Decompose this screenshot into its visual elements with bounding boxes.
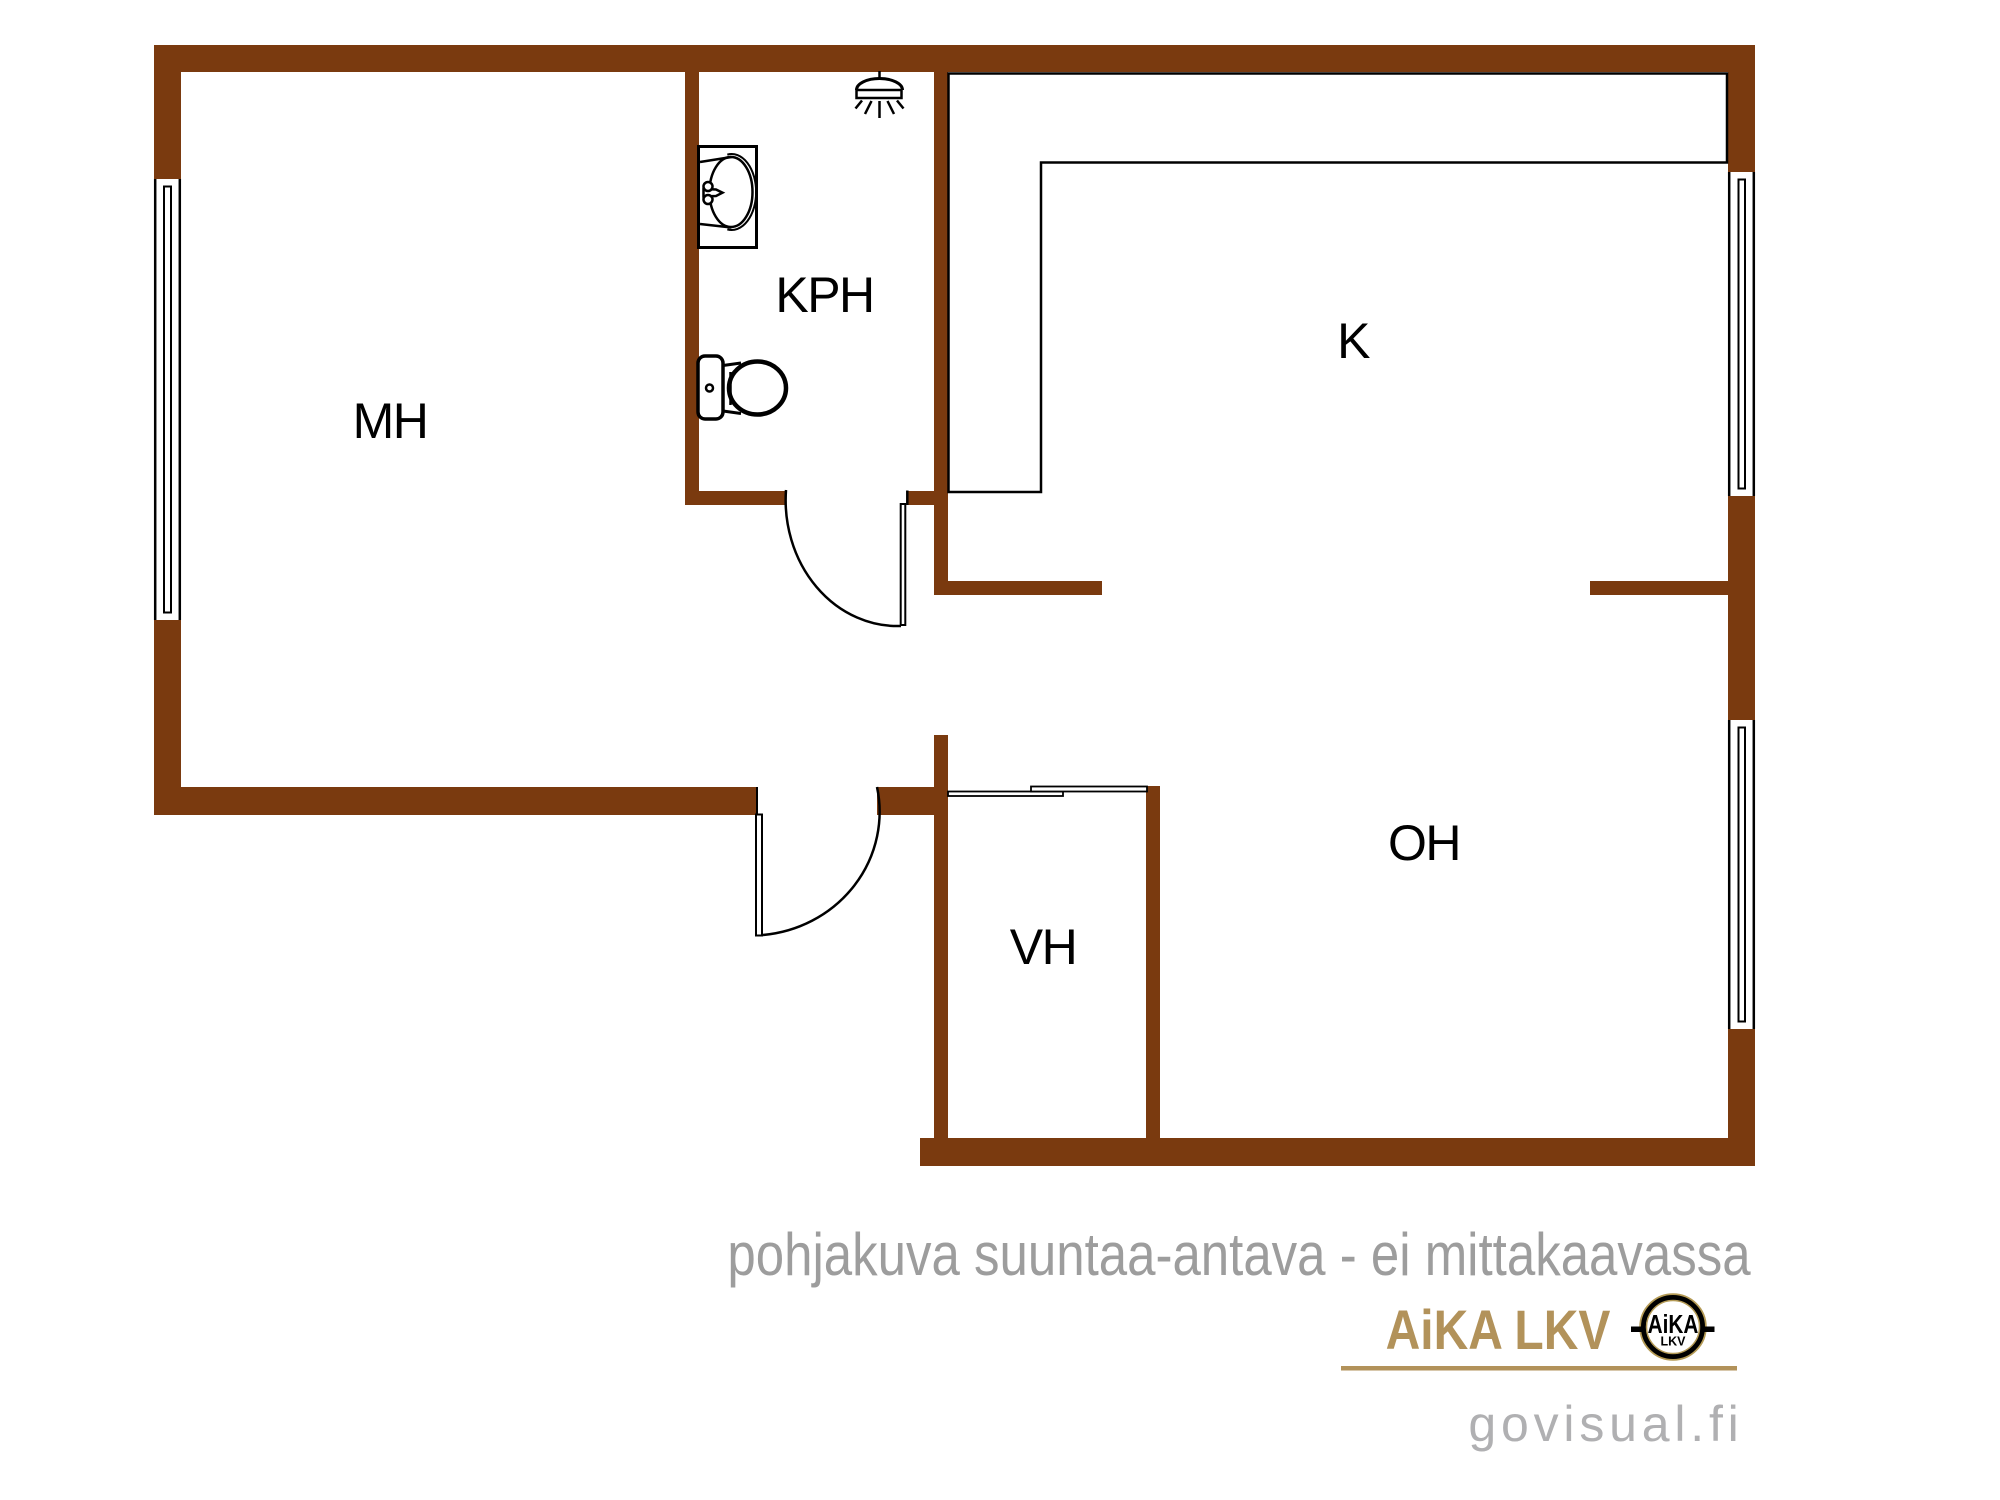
svg-text:KPH: KPH [775,267,873,323]
svg-text:MH: MH [353,393,428,449]
svg-text:VH: VH [1010,919,1076,975]
svg-text:OH: OH [1388,815,1460,871]
svg-text:govisual.fi: govisual.fi [1468,1396,1743,1452]
svg-text:pohjakuva suuntaa-antava - ei: pohjakuva suuntaa-antava - ei mittakaava… [727,1221,1750,1288]
svg-text:LKV: LKV [1661,1335,1687,1349]
svg-text:K: K [1337,313,1370,369]
svg-text:AiKA LKV: AiKA LKV [1386,1300,1611,1362]
